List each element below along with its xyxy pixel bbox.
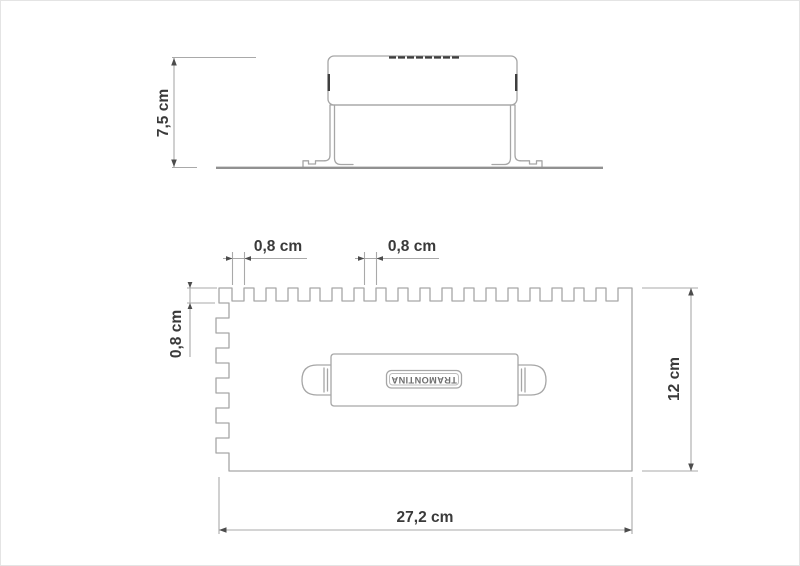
plate-depth-label: 12 cm	[666, 357, 683, 401]
notch-width-label-2: 0,8 cm	[388, 238, 436, 255]
arrowhead-left	[219, 527, 227, 533]
drawing-svg: 7,5 cm TRAMONTINA	[1, 1, 800, 566]
arrowhead-down	[171, 160, 177, 168]
arrowhead-left	[245, 256, 252, 261]
arrowhead-up	[188, 303, 193, 309]
side-right-leg-inner	[492, 105, 511, 165]
arrowhead-right	[358, 256, 365, 261]
trowel-dimension-drawing: 7,5 cm TRAMONTINA	[0, 0, 800, 566]
plate-width-label: 27,2 cm	[397, 509, 454, 526]
side-right-foot	[521, 161, 543, 167]
plan-view: TRAMONTINA 0,8 cm 0,8 cm	[168, 238, 698, 534]
arrowhead-left	[377, 256, 384, 261]
arrowhead-right	[625, 527, 633, 533]
side-view: 7,5 cm	[155, 56, 603, 168]
arrowhead-down	[688, 464, 694, 472]
arrowhead-up	[171, 58, 177, 66]
plate-width-dimension: 27,2 cm	[219, 477, 632, 534]
side-right-leg-outer	[515, 105, 521, 161]
notch-depth-label: 0,8 cm	[168, 310, 185, 358]
side-left-foot	[303, 161, 325, 167]
plate-depth-dimension: 12 cm	[642, 288, 698, 471]
notch-width-label-1: 0,8 cm	[254, 238, 302, 255]
arrowhead-up	[688, 288, 694, 296]
arrowhead-down	[188, 282, 193, 288]
notch-depth-dimension: 0,8 cm	[168, 282, 217, 358]
arrowhead-right	[226, 256, 233, 261]
brand-label: TRAMONTINA	[391, 375, 457, 385]
side-height-dimension: 7,5 cm	[155, 58, 256, 168]
side-left-leg-inner	[335, 105, 354, 165]
notch-width-dimension-2: 0,8 cm	[355, 238, 439, 285]
side-left-leg-outer	[325, 105, 331, 161]
side-handle-outline	[328, 56, 517, 105]
side-height-label: 7,5 cm	[155, 89, 172, 137]
notch-width-dimension-1: 0,8 cm	[223, 238, 307, 285]
